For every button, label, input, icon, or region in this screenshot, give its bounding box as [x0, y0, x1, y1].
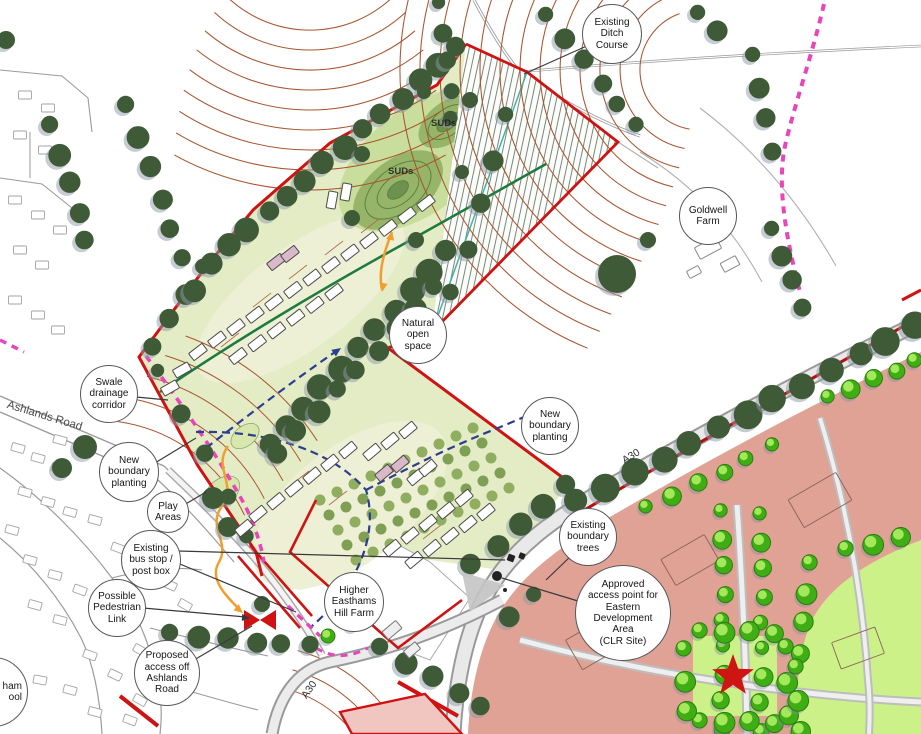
callout-line: Road: [155, 684, 179, 695]
callout-line: Course: [596, 40, 628, 51]
callout-line: Proposed: [146, 650, 189, 661]
callout-line: Existing: [570, 520, 605, 531]
callout-line: New: [119, 455, 139, 466]
callout-line: access off: [145, 662, 190, 673]
callout-possible-pedestrian-link: PossiblePedestrianLink: [88, 579, 146, 637]
callout-line: New: [540, 409, 560, 420]
callout-line: planting: [111, 478, 146, 489]
callout-natural-open-space: Naturalopenspace: [389, 306, 447, 364]
callout-line: trees: [577, 543, 599, 554]
callout-line: corridor: [92, 400, 126, 411]
callout-line: boundary: [529, 420, 571, 431]
callout-line: Easthams: [332, 596, 376, 607]
callout-line: bus stop /: [129, 554, 172, 565]
callout-line: boundary: [108, 466, 150, 477]
callout-line: ham: [3, 681, 22, 692]
callout-line: Higher: [339, 585, 368, 596]
masterplan: ExistingDitchCourseGoldwellFarmNaturalop…: [0, 0, 921, 734]
callout-line: Play: [158, 501, 177, 512]
callout-new-boundary-planting-east: Newboundaryplanting: [521, 397, 579, 455]
callout-play-areas: PlayAreas: [147, 491, 189, 533]
callout-new-boundary-planting-west: Newboundaryplanting: [99, 442, 159, 502]
callout-line: Possible: [98, 591, 136, 602]
callout-line: space: [405, 341, 432, 352]
callout-swale-drainage-corridor: Swaledrainagecorridor: [80, 365, 138, 423]
callout-line: post box: [132, 566, 170, 577]
callout-line: Hill Farm: [334, 608, 374, 619]
callout-line: Development: [594, 613, 653, 624]
callout-line: Pedestrian: [93, 602, 141, 613]
callout-approved-access-point: Approvedaccess point forEasternDevelopme…: [575, 565, 671, 661]
area-label-suds-lower: SUDs: [388, 166, 413, 177]
callout-line: open: [407, 329, 429, 340]
callout-higher-easthams-hill-farm: HigherEasthamsHill Farm: [324, 572, 384, 632]
callout-line: Goldwell: [689, 205, 727, 216]
callout-existing-bus-stop-post-box: Existingbus stop /post box: [121, 530, 181, 590]
callout-line: planting: [532, 432, 567, 443]
callout-line: drainage: [90, 388, 129, 399]
area-label-suds-upper: SUDs: [431, 118, 456, 129]
callout-line: Existing: [594, 17, 629, 28]
callout-line: Area: [612, 624, 633, 635]
callout-proposed-access-off-ashlands-road: Proposedaccess offAshlandsRoad: [134, 640, 200, 706]
callout-line: Eastern: [606, 602, 640, 613]
callout-line: Ashlands: [146, 673, 187, 684]
callout-goldwell-farm: GoldwellFarm: [679, 187, 737, 245]
callout-line: Existing: [133, 543, 168, 554]
callout-line: Farm: [696, 216, 719, 227]
callout-line: ool: [9, 692, 22, 703]
callout-line: Natural: [402, 318, 434, 329]
callout-line: Ditch: [601, 28, 624, 39]
callout-line: Approved: [602, 579, 645, 590]
callout-line: access point for: [588, 590, 658, 601]
callout-line: (CLR Site): [600, 636, 647, 647]
callout-line: Areas: [155, 512, 181, 523]
callout-line: Swale: [95, 377, 122, 388]
callout-line: Link: [108, 614, 126, 625]
callout-existing-ditch-course: ExistingDitchCourse: [582, 4, 642, 64]
callout-existing-boundary-trees: Existingboundarytrees: [559, 508, 617, 566]
callout-line: boundary: [567, 531, 609, 542]
